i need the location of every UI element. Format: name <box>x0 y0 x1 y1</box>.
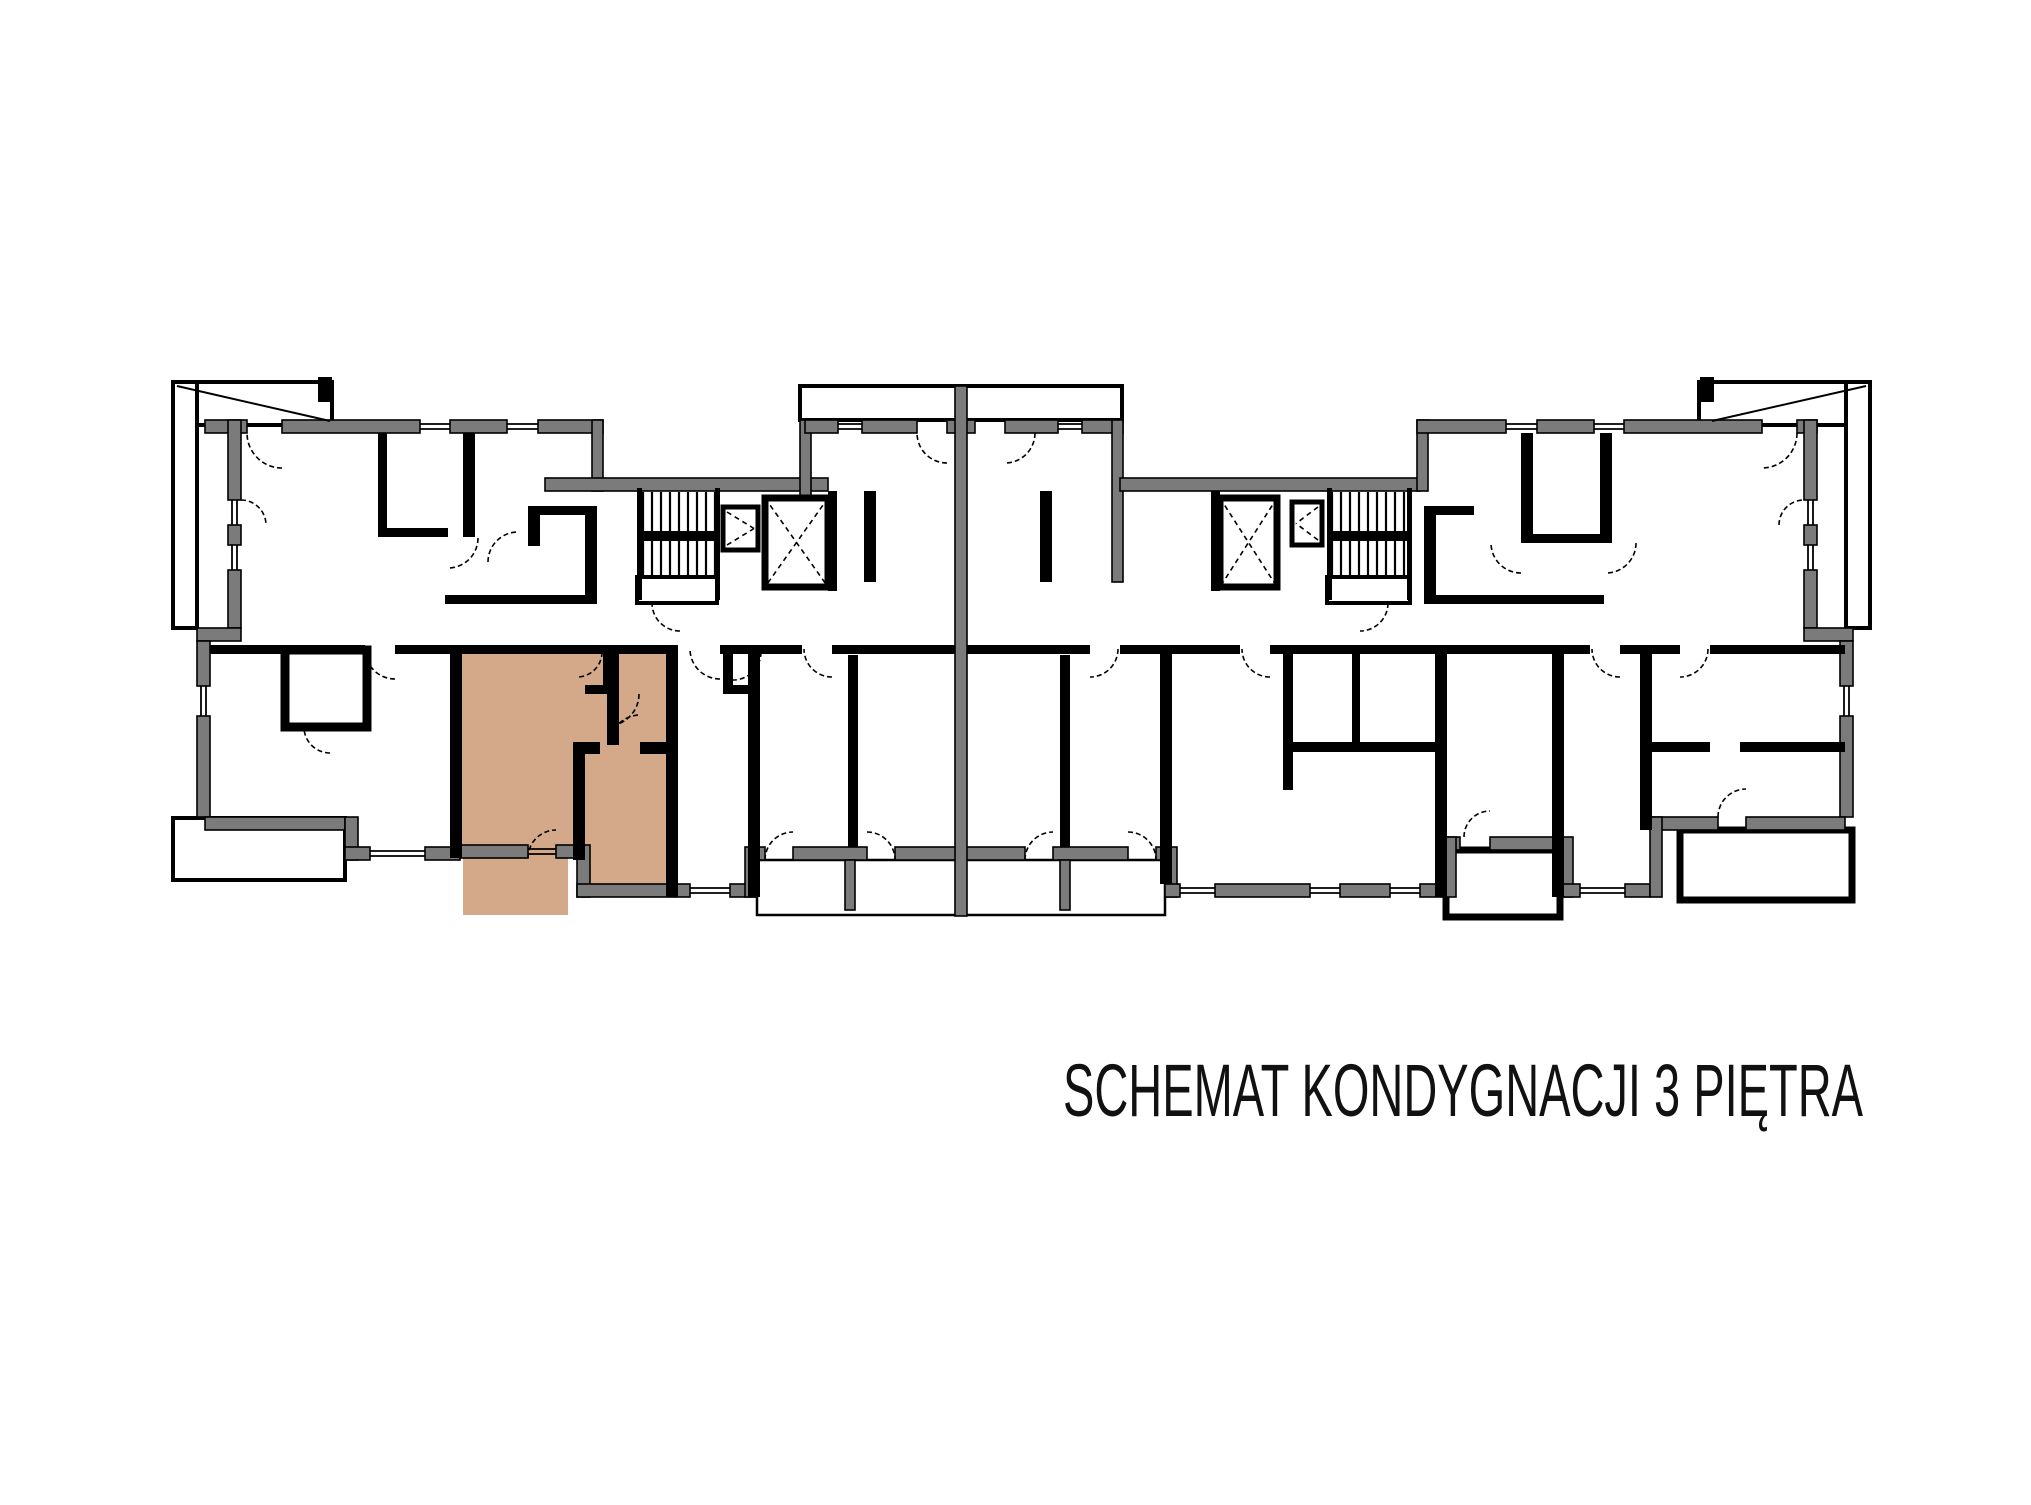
highlighted-unit[interactable] <box>455 648 675 915</box>
balcony-outline <box>173 382 1870 880</box>
interior-wall <box>210 377 1845 897</box>
room-box <box>285 650 367 727</box>
floor-plan-svg: SCHEMAT KONDYGNACJI 3 PIĘTRA <box>0 0 2031 1505</box>
elevator-icon <box>723 498 1322 587</box>
plan-title-group: SCHEMAT KONDYGNACJI 3 PIĘTRA <box>1063 1049 1863 1132</box>
plan-title: SCHEMAT KONDYGNACJI 3 PIĘTRA <box>1063 1049 1863 1132</box>
floor-plan-page: SCHEMAT KONDYGNACJI 3 PIĘTRA <box>0 0 2031 1505</box>
